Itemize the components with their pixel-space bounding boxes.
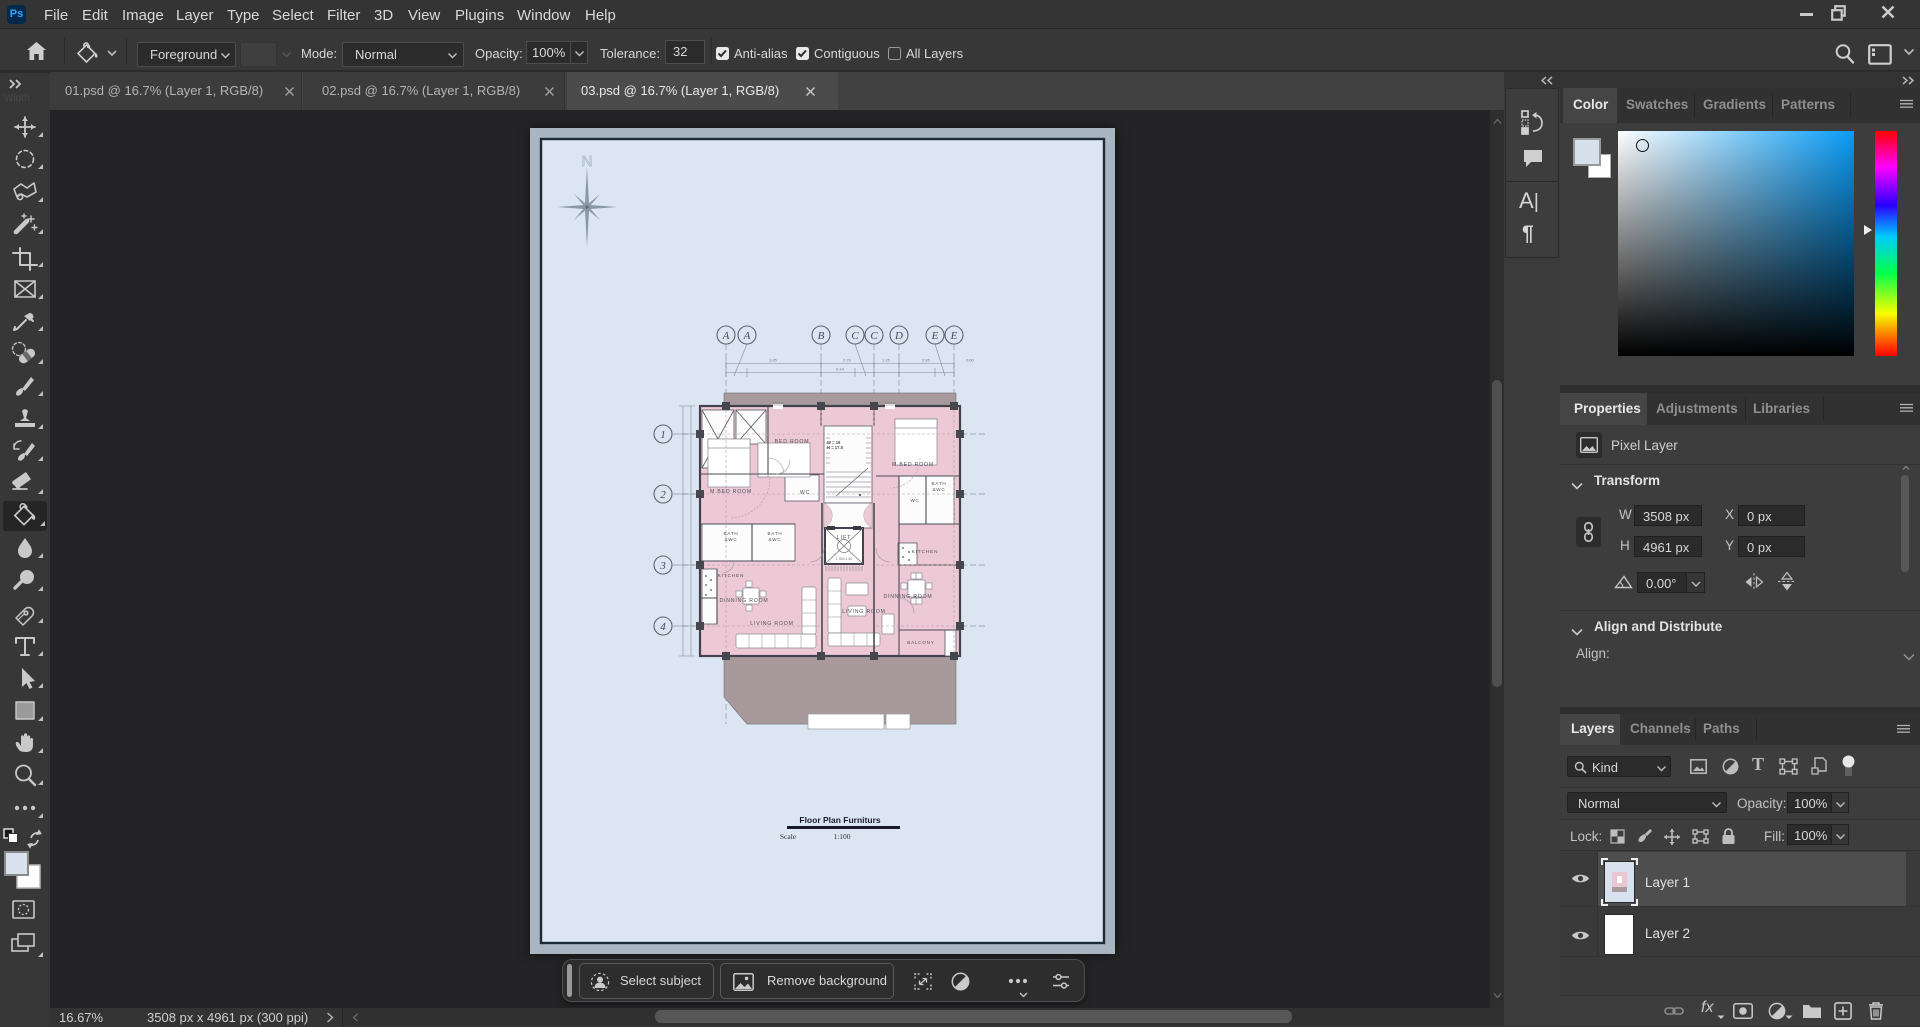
svg-text:C: C	[870, 330, 878, 342]
svg-text:1.25: 1.25	[882, 358, 891, 363]
svg-text:BATH: BATH	[767, 531, 782, 536]
svg-text:BATH: BATH	[723, 531, 738, 536]
svg-text:M.BED ROOM: M.BED ROOM	[710, 489, 752, 495]
svg-text:LIVING ROOM: LIVING ROOM	[750, 621, 793, 627]
svg-text:LIVING ROOM: LIVING ROOM	[842, 609, 885, 615]
svg-text:BATH: BATH	[931, 481, 946, 486]
svg-text:BED ROOM: BED ROOM	[775, 439, 810, 445]
svg-text:WC: WC	[800, 490, 810, 496]
svg-text:DINNING ROOM: DINNING ROOM	[883, 594, 932, 600]
svg-text:3.85: 3.85	[769, 358, 778, 363]
svg-text:3: 3	[659, 560, 666, 572]
svg-text:&WC: &WC	[932, 487, 945, 492]
svg-text:C: C	[851, 330, 859, 342]
svg-text:WC: WC	[910, 498, 919, 503]
svg-text:&WC: &WC	[768, 537, 781, 542]
svg-text:E: E	[931, 330, 939, 342]
svg-text:1.90x1.40: 1.90x1.40	[836, 557, 853, 561]
svg-text:&WC: &WC	[724, 537, 737, 542]
svg-text:H = 17.5: H = 17.5	[827, 445, 844, 450]
svg-text:A: A	[743, 330, 751, 342]
svg-text:KITCHEN: KITCHEN	[718, 573, 745, 579]
svg-text:B: B	[818, 330, 825, 342]
svg-text:9.14: 9.14	[836, 367, 845, 372]
svg-text:2.85: 2.85	[922, 358, 931, 363]
svg-text:1: 1	[660, 429, 666, 441]
svg-text:Floor Plan Furniturs: Floor Plan Furniturs	[799, 815, 880, 825]
svg-text:Scale: Scale	[780, 832, 797, 841]
svg-text:D: D	[894, 330, 903, 342]
svg-text:4: 4	[660, 621, 666, 633]
svg-text:KITCHEN: KITCHEN	[912, 549, 939, 555]
svg-text:0.60: 0.60	[966, 358, 975, 363]
svg-text:E: E	[950, 330, 958, 342]
svg-text:2.70: 2.70	[843, 358, 852, 363]
svg-text:A: A	[722, 330, 730, 342]
svg-text:LIFT: LIFT	[837, 535, 852, 541]
svg-text:DINNING ROOM: DINNING ROOM	[719, 598, 768, 604]
svg-text:BALCONY: BALCONY	[907, 640, 935, 645]
svg-text:M.BED ROOM: M.BED ROOM	[892, 462, 934, 468]
svg-text:1:100: 1:100	[833, 832, 850, 841]
svg-text:2: 2	[660, 489, 666, 501]
